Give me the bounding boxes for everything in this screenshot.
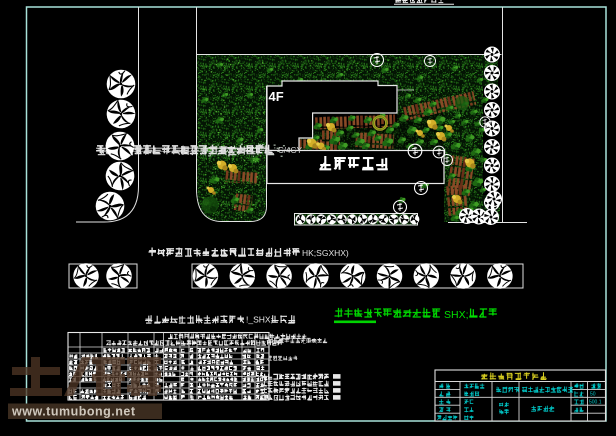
svg-text:!_SHX;: !_SHX; [246,315,273,325]
svg-text:4F: 4F [269,89,284,104]
svg-text:50: 50 [590,392,596,398]
svg-text:_SHX;: _SHX; [302,339,317,345]
svg-text:C/4GY: C/4GY [278,146,303,155]
svg-text:500.1: 500.1 [589,400,602,406]
svg-text:www.tumubong.net: www.tumubong.net [11,405,136,419]
svg-text:SHX;: SHX; [444,309,469,321]
svg-text:HK;SGXHX): HK;SGXHX) [302,248,349,258]
